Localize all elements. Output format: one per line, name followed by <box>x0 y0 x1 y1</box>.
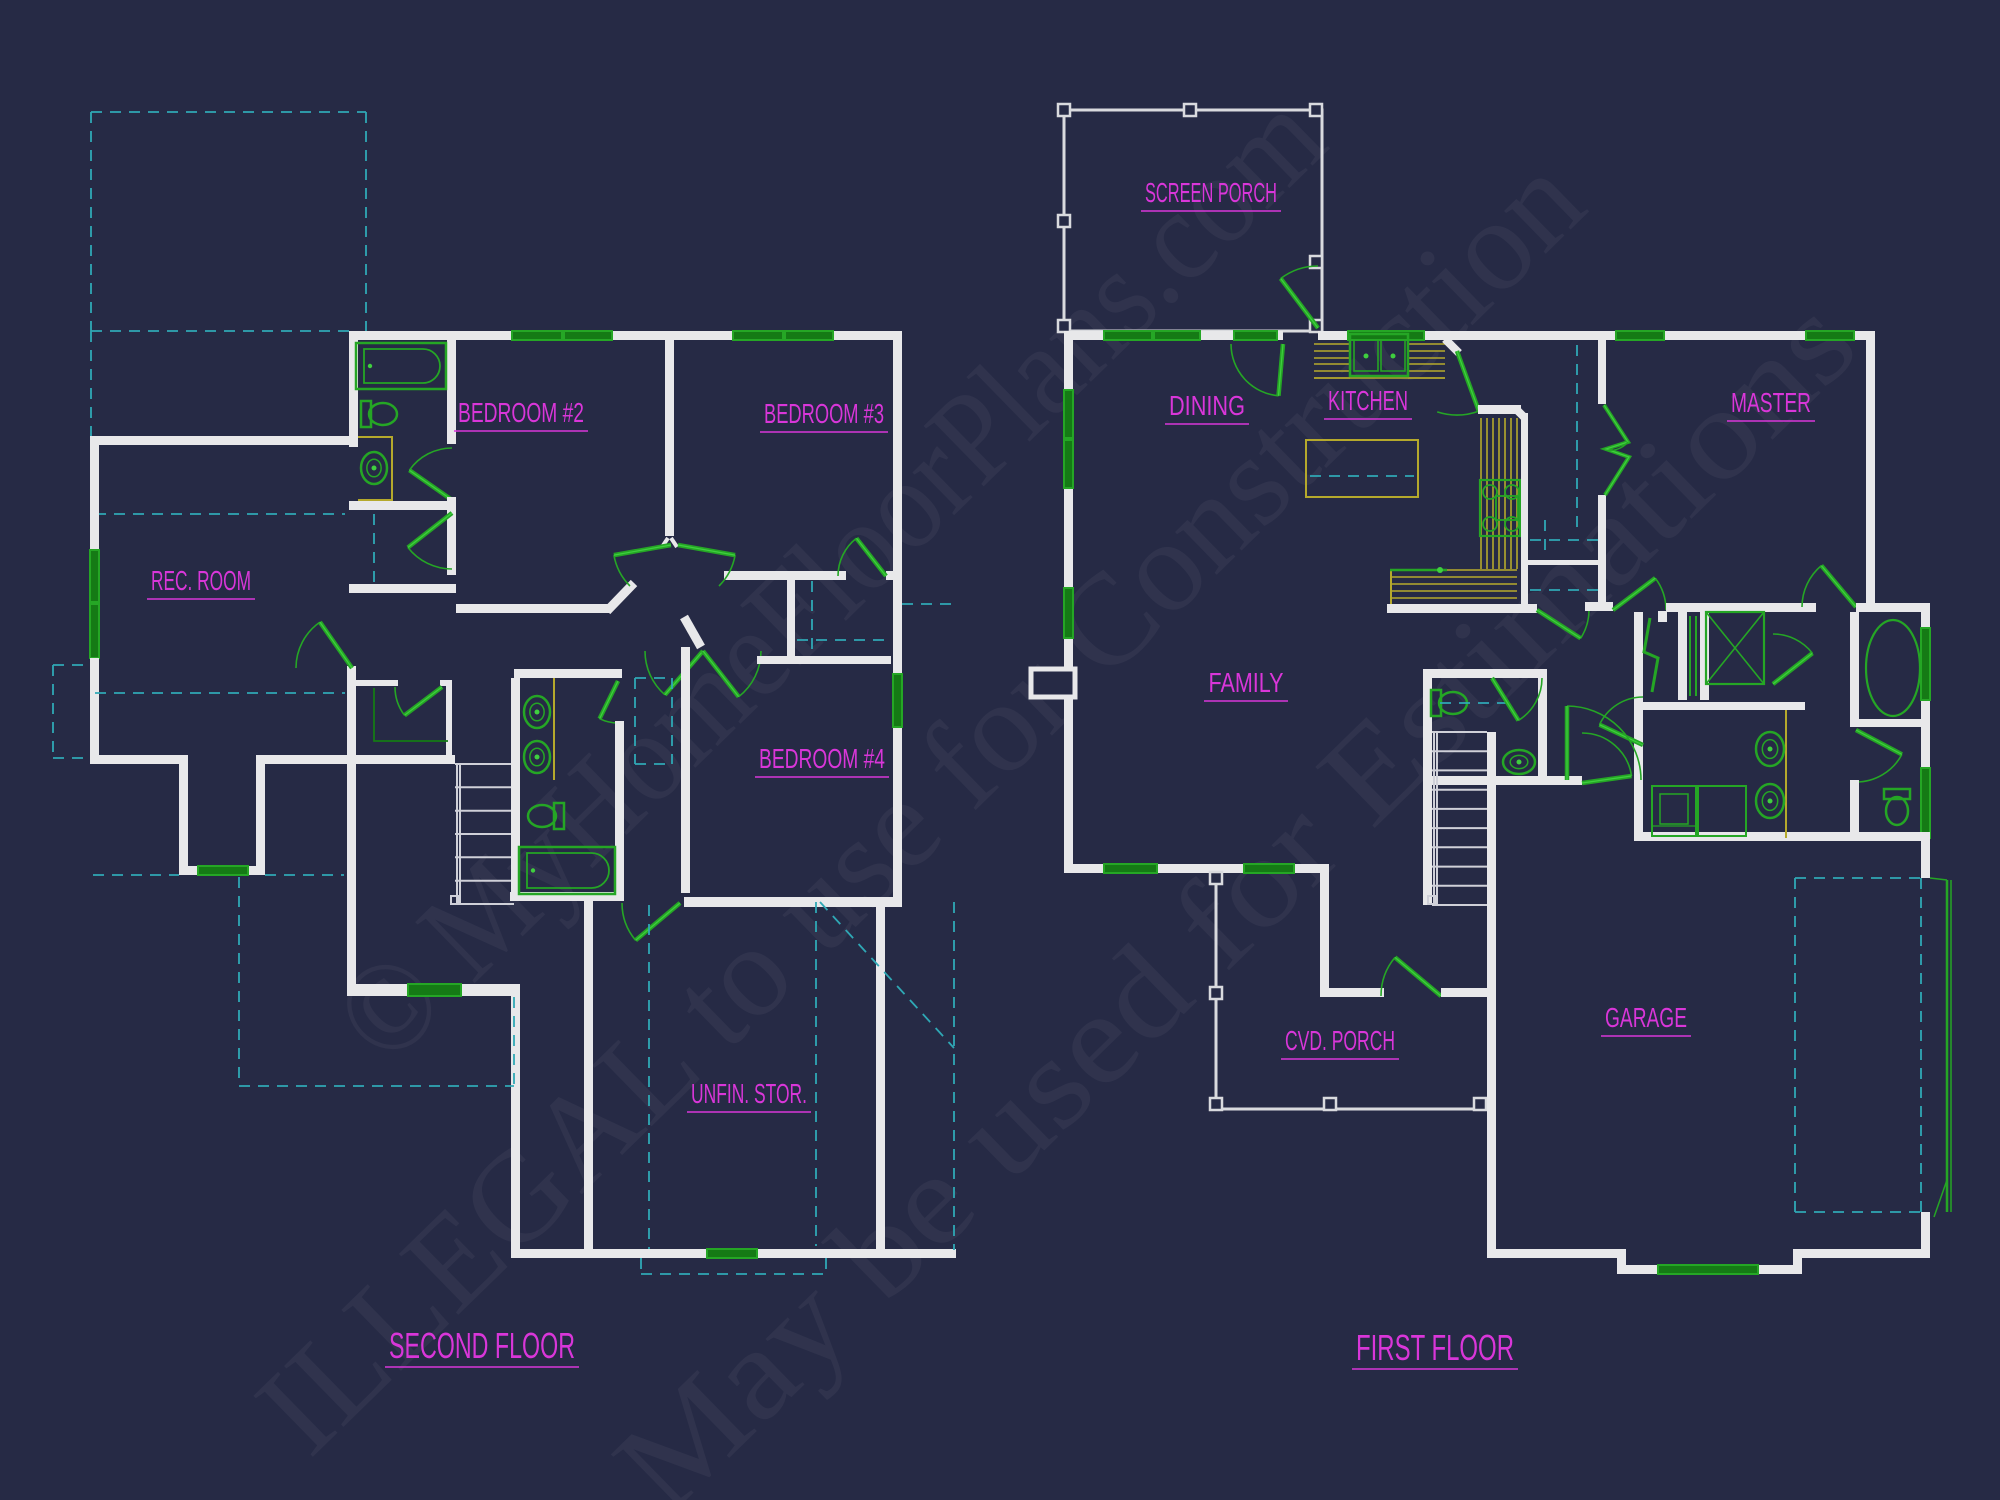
svg-text:UNFIN. STOR.: UNFIN. STOR. <box>691 1078 807 1109</box>
svg-text:GARAGE: GARAGE <box>1605 1002 1687 1033</box>
svg-text:FAMILY: FAMILY <box>1209 667 1284 698</box>
svg-text:DINING: DINING <box>1169 390 1245 421</box>
svg-text:BEDROOM #3: BEDROOM #3 <box>764 398 884 429</box>
svg-text:SECOND FLOOR: SECOND FLOOR <box>389 1325 575 1366</box>
svg-text:CVD. PORCH: CVD. PORCH <box>1285 1025 1395 1056</box>
svg-text:BEDROOM #2: BEDROOM #2 <box>458 397 584 428</box>
svg-text:REC. ROOM: REC. ROOM <box>151 565 251 596</box>
svg-text:FIRST FLOOR: FIRST FLOOR <box>1356 1327 1514 1368</box>
svg-text:MASTER: MASTER <box>1731 387 1811 418</box>
svg-text:SCREEN PORCH: SCREEN PORCH <box>1145 177 1277 208</box>
svg-text:BEDROOM #4: BEDROOM #4 <box>759 743 885 774</box>
svg-text:KITCHEN: KITCHEN <box>1328 385 1408 416</box>
